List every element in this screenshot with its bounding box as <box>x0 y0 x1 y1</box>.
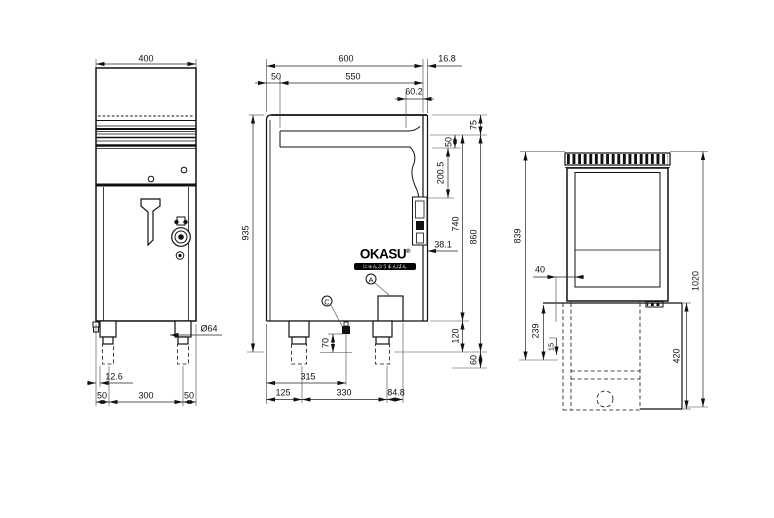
dim-front-bottom-left: 50 <box>97 392 107 401</box>
dim-side-back-panel: 16.8 <box>438 55 456 64</box>
dim-side-connection-height: 70 <box>322 338 331 348</box>
dim-side-total-width: 600 <box>338 55 353 64</box>
registered-trademark-icon: ® <box>406 249 410 255</box>
dim-front-bottom-center: 300 <box>138 392 153 401</box>
callout-a: A <box>366 274 377 285</box>
dim-front-bottom-right: 50 <box>184 392 194 401</box>
technical-drawing-canvas: 400 Ø64 12.6 50 300 50 600 16.8 50 550 6… <box>0 0 774 518</box>
dim-side-worktop-depth: 550 <box>345 73 360 82</box>
dim-rear-overall-height: 1020 <box>692 271 701 291</box>
dim-side-gas-offset: 38.1 <box>434 241 452 250</box>
dim-rear-upper-height: 839 <box>514 228 523 243</box>
dim-side-upper-section: 200.5 <box>437 162 446 185</box>
dim-rear-pedestal-height: 420 <box>673 348 682 363</box>
dim-side-overall-height: 935 <box>242 225 251 240</box>
dim-side-bottom-left: 125 <box>275 389 290 398</box>
dim-front-leg-inset: 12.6 <box>105 373 123 382</box>
callout-c: C <box>322 296 333 307</box>
dim-side-step-height: 50 <box>445 137 454 147</box>
rear-view-linework <box>543 153 682 410</box>
watermark-banner: にゅんぶうまんばん <box>354 263 416 270</box>
watermark-brand-text: OKASU <box>360 247 406 262</box>
dim-side-back-gap: 60.2 <box>405 88 423 97</box>
dim-side-foot-height: 60 <box>470 355 479 365</box>
dim-side-bottom-right: 84.8 <box>387 389 405 398</box>
dim-rear-small-offset: 15 <box>547 343 556 351</box>
front-view-linework <box>93 68 196 364</box>
dim-side-front-overhang: 50 <box>271 73 281 82</box>
dim-side-rim-height: 75 <box>470 120 479 130</box>
dim-side-bottom-center: 330 <box>336 389 351 398</box>
dim-front-leg-diameter: Ø64 <box>200 325 217 334</box>
dim-front-top-width: 400 <box>138 55 153 64</box>
dim-rear-box-height: 239 <box>532 323 541 338</box>
watermark-logo: OKASU® にゅんぶうまんばん <box>354 245 416 270</box>
dim-side-connection-distance: 315 <box>300 373 315 382</box>
dim-side-height-860: 860 <box>470 229 479 244</box>
watermark-brand: OKASU® <box>354 245 416 262</box>
dim-side-plinth-height: 120 <box>452 328 461 343</box>
dim-side-body-height: 740 <box>452 216 461 231</box>
dim-rear-panel-inset: 40 <box>535 266 545 275</box>
